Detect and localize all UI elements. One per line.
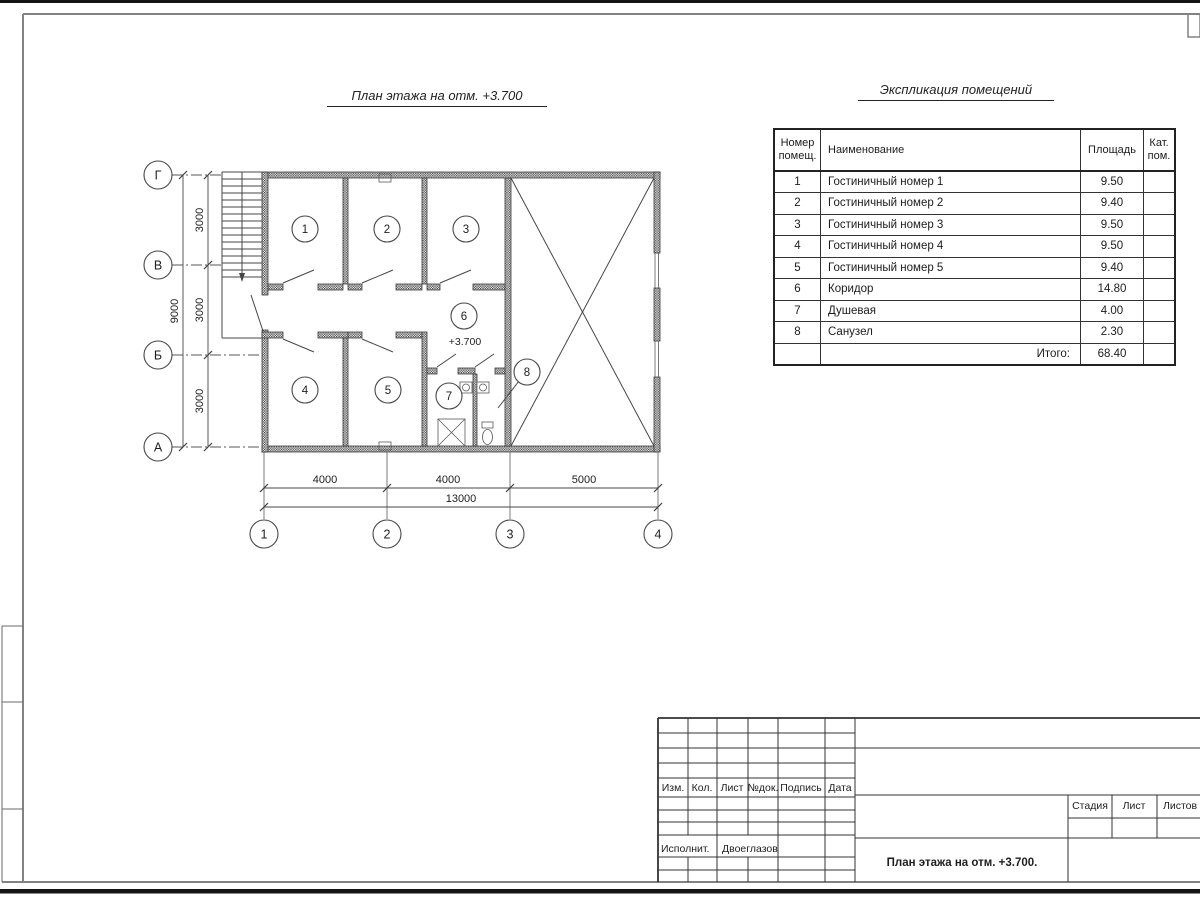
table-row: 6 Коридор 14.80 bbox=[774, 279, 1175, 301]
cell-number: 4 bbox=[774, 236, 821, 258]
dim-text: 4000 bbox=[313, 474, 337, 486]
col-header-number: Номер помещ. bbox=[774, 129, 821, 171]
cell-area: 4.00 bbox=[1081, 300, 1144, 322]
dim-text: 3000 bbox=[194, 208, 206, 232]
cell-cat bbox=[1144, 214, 1176, 236]
axis-label: В bbox=[154, 259, 162, 273]
cell-number: 8 bbox=[774, 322, 821, 344]
dim-text: 3000 bbox=[194, 298, 206, 322]
cell-cat bbox=[1144, 300, 1176, 322]
cell-area: 2.30 bbox=[1081, 322, 1144, 344]
cell-number: 1 bbox=[774, 171, 821, 193]
tb-executor-label: Исполнит. bbox=[661, 843, 709, 855]
cell-area: 9.40 bbox=[1081, 193, 1144, 215]
dim-text: 3000 bbox=[194, 389, 206, 413]
cell-number: 2 bbox=[774, 193, 821, 215]
tb-col-data: Дата bbox=[828, 782, 851, 794]
tb-sheet-label: Лист bbox=[1123, 800, 1146, 812]
plan-title: План этажа на отм. +3.700 bbox=[327, 88, 547, 107]
cell-name: Коридор bbox=[821, 279, 1081, 301]
room-bubbles: 1 2 3 4 5 6 7 8 +3.700 bbox=[292, 216, 540, 409]
total-row: Итого: 68.40 bbox=[774, 343, 1175, 365]
explication-header-row: Номер помещ. Наименование Площадь Кат. п… bbox=[774, 129, 1175, 171]
tb-col-kol: Кол. bbox=[692, 782, 713, 794]
table-row: 3 Гостиничный номер 3 9.50 bbox=[774, 214, 1175, 236]
tb-col-izm: Изм. bbox=[662, 782, 685, 794]
cell-cat bbox=[1144, 322, 1176, 344]
cell-name: Гостиничный номер 1 bbox=[821, 171, 1081, 193]
room-number: 1 bbox=[302, 224, 308, 236]
explication-table: Номер помещ. Наименование Площадь Кат. п… bbox=[773, 128, 1176, 366]
room-number: 6 bbox=[461, 311, 467, 323]
table-row: 8 Санузел 2.30 bbox=[774, 322, 1175, 344]
cell-number: 6 bbox=[774, 279, 821, 301]
col-header-name: Наименование bbox=[821, 129, 1081, 171]
toilet-tank bbox=[482, 422, 493, 428]
cell-name: Гостиничный номер 5 bbox=[821, 257, 1081, 279]
axis-label: 1 bbox=[261, 528, 268, 542]
tb-sheets-label: Листов bbox=[1163, 800, 1198, 812]
drawing-sheet: Г В Б А 3000 3000 3000 9000 bbox=[0, 0, 1200, 900]
cell-number: 3 bbox=[774, 214, 821, 236]
horizontal-dimensions: 4000 4000 5000 13000 1 2 3 4 bbox=[250, 452, 672, 548]
cell-name: Гостиничный номер 2 bbox=[821, 193, 1081, 215]
room-number: 3 bbox=[463, 224, 469, 236]
col-header-cat: Кат. пом. bbox=[1144, 129, 1176, 171]
room-number: 4 bbox=[302, 385, 309, 397]
room-number: 5 bbox=[385, 385, 391, 397]
cell-cat bbox=[1144, 193, 1176, 215]
plan-title-wrap: План этажа на отм. +3.700 bbox=[327, 88, 547, 107]
tb-stage-label: Стадия bbox=[1072, 800, 1108, 812]
cell-name: Гостиничный номер 3 bbox=[821, 214, 1081, 236]
top-edge-strip bbox=[0, 0, 1200, 3]
title-block: Изм. Кол. Лист №док. Подпись Дата Исполн… bbox=[658, 718, 1200, 882]
axis-label: 4 bbox=[655, 528, 662, 542]
cell-area: 9.40 bbox=[1081, 257, 1144, 279]
explication-title-wrap: Экспликация помещений bbox=[858, 82, 1054, 101]
cell-area: 9.50 bbox=[1081, 214, 1144, 236]
cell-name: Санузел bbox=[821, 322, 1081, 344]
frame-corner-box bbox=[1188, 14, 1200, 37]
axis-label: Б bbox=[154, 349, 162, 363]
cell-number: 5 bbox=[774, 257, 821, 279]
dim-text: 13000 bbox=[446, 493, 477, 505]
room-number: 8 bbox=[524, 367, 530, 379]
axis-label: А bbox=[154, 441, 163, 455]
staircase bbox=[222, 172, 262, 338]
cell-cat bbox=[1144, 257, 1176, 279]
dim-text: 9000 bbox=[169, 299, 181, 323]
room-number: 7 bbox=[446, 391, 452, 403]
cell-cat bbox=[1144, 236, 1176, 258]
tb-col-podpis: Подпись bbox=[780, 782, 822, 794]
bottom-edge-strip bbox=[0, 889, 1200, 894]
left-margin-boxes bbox=[2, 626, 23, 882]
tb-col-list: Лист bbox=[721, 782, 744, 794]
tb-doc-title: План этажа на отм. +3.700. bbox=[887, 857, 1038, 869]
cell-empty bbox=[774, 343, 821, 365]
cell-area: 14.80 bbox=[1081, 279, 1144, 301]
total-area: 68.40 bbox=[1081, 343, 1144, 365]
level-mark: +3.700 bbox=[449, 336, 482, 348]
table-row: 5 Гостиничный номер 5 9.40 bbox=[774, 257, 1175, 279]
cell-empty bbox=[1144, 343, 1176, 365]
cell-area: 9.50 bbox=[1081, 236, 1144, 258]
cell-cat bbox=[1144, 171, 1176, 193]
cell-name: Душевая bbox=[821, 300, 1081, 322]
tb-executor-name: Двоеглазов bbox=[722, 843, 778, 855]
vertical-dimensions: 3000 3000 3000 9000 bbox=[169, 175, 208, 447]
col-header-area: Площадь bbox=[1081, 129, 1144, 171]
table-row: 7 Душевая 4.00 bbox=[774, 300, 1175, 322]
table-row: 4 Гостиничный номер 4 9.50 bbox=[774, 236, 1175, 258]
cell-cat bbox=[1144, 279, 1176, 301]
axis-label: Г bbox=[155, 169, 162, 183]
total-label: Итого: bbox=[821, 343, 1081, 365]
toilet-bowl bbox=[483, 430, 493, 445]
table-row: 2 Гостиничный номер 2 9.40 bbox=[774, 193, 1175, 215]
cell-number: 7 bbox=[774, 300, 821, 322]
cell-name: Гостиничный номер 4 bbox=[821, 236, 1081, 258]
dim-text: 4000 bbox=[436, 474, 460, 486]
floor-plan: Г В Б А 3000 3000 3000 9000 bbox=[144, 161, 672, 548]
axis-label: 2 bbox=[384, 528, 391, 542]
room-number: 2 bbox=[384, 224, 390, 236]
tb-col-ndok: №док. bbox=[748, 782, 779, 794]
table-row: 1 Гостиничный номер 1 9.50 bbox=[774, 171, 1175, 193]
axis-label: 3 bbox=[507, 528, 514, 542]
explication-title: Экспликация помещений bbox=[858, 82, 1054, 101]
void-area-cross bbox=[511, 178, 654, 446]
dim-text: 5000 bbox=[572, 474, 596, 486]
cell-area: 9.50 bbox=[1081, 171, 1144, 193]
